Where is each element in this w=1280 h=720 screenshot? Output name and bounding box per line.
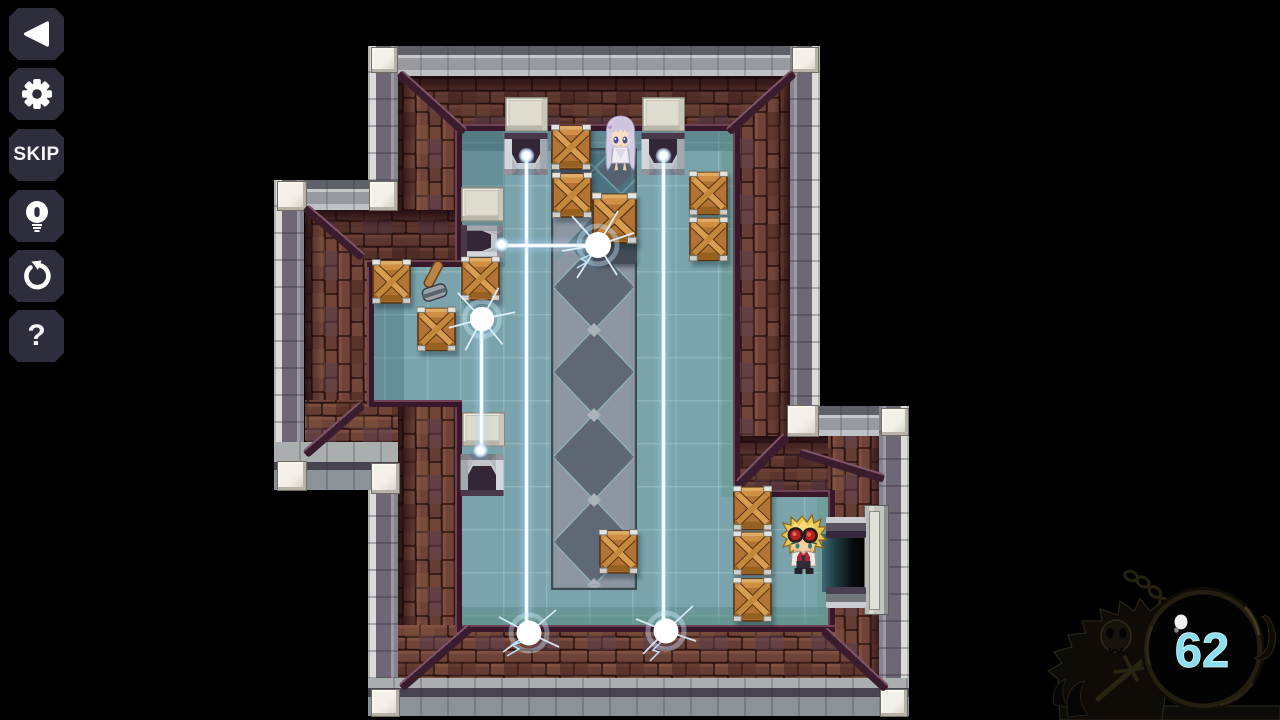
svg-text:62: 62: [1175, 624, 1230, 678]
